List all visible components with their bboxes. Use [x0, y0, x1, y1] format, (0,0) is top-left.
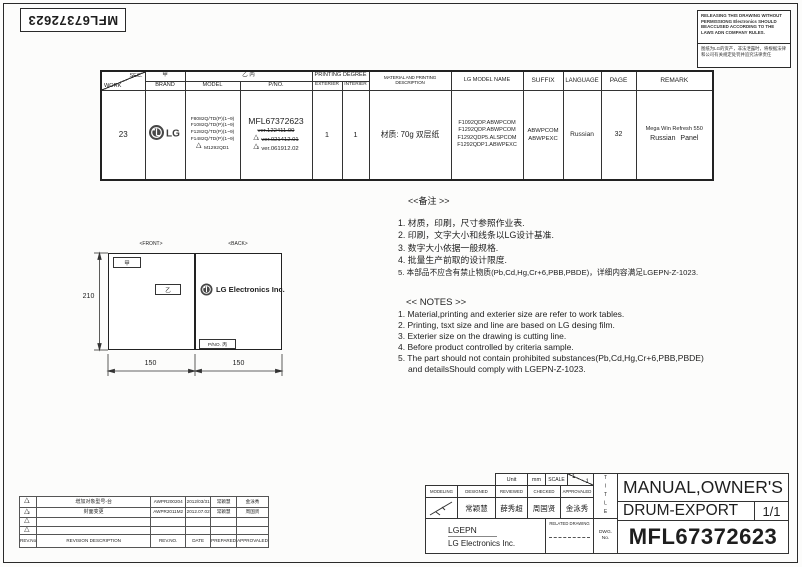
company-name: LG Electronics Inc. [448, 539, 515, 548]
pno-version: △1ver.021412.01 [241, 135, 312, 144]
header-pno: P/NO. [240, 81, 312, 90]
dim-width-left-label: 150 [138, 360, 163, 367]
note-cn-item: 2. 印刷，文字大小和线条以LG设计基准. [398, 229, 698, 241]
revision-delta-icon: △1 [196, 143, 204, 150]
cell-page: 32 [601, 90, 636, 180]
related-drawing-cell: RELATED DRAWING [545, 518, 594, 554]
revision-delta-icon: △ [24, 518, 32, 525]
header-jia: 甲 [145, 71, 185, 81]
header-exterier: EXTERIER [312, 81, 342, 90]
warning-box: RELEASING THIS DRAWING WITHOUT PERMISSIO… [697, 10, 791, 68]
revision-approved: 金泳秀 [237, 497, 269, 508]
cell-remark: Mega Win Refresh 550 Russian Panel [636, 90, 713, 180]
signature-mark [428, 499, 456, 517]
note-en-item: 5. The part should not contain prohibite… [398, 353, 704, 364]
header-work: WORK [104, 83, 121, 89]
revision-delta-icon: △ [24, 527, 32, 534]
cell-language: Russian [563, 90, 601, 180]
cell-interier: 1 [342, 90, 369, 180]
cell-lg-models: F1092QDP.ABWPCOM F1292QDP.ABWPCOM F1292Q… [451, 90, 523, 180]
related-drawing-divider [549, 537, 590, 538]
note-en-item: 4. Before product controlled by criteria… [398, 342, 704, 353]
model-line: F1282Q/TD(P)(1~9) [186, 130, 240, 137]
revision-prepared: 常颖慧 [211, 497, 237, 508]
dim-height-label: 210 [80, 293, 97, 300]
lg-model-line: F1092QDP.ABWPCOM [452, 120, 523, 128]
model-line: F1482Q/TD(P)(1~9) [186, 137, 240, 144]
revision-desc: 封面变更 [37, 508, 151, 518]
revision-label-approved: APPROVALED [237, 535, 269, 548]
remark-line: Mega Win Refresh 550 [637, 125, 713, 134]
revision-prepared: 常颖慧 [211, 508, 237, 518]
header-interier: INTERIER [342, 81, 369, 90]
revision-label-date: DATE [186, 535, 211, 548]
revision-label-revno-col: REV.No [20, 535, 37, 548]
header-sec-work: SEC. WORK [101, 71, 145, 90]
related-drawing-label: RELATED DRAWING [549, 521, 589, 526]
cell-models: F8082Q/TD(P)(1~9) F1082Q/TD(P)(1~9) F128… [185, 90, 240, 180]
dim-width-right-label: 150 [226, 360, 251, 367]
svg-text:LG: LG [166, 128, 180, 139]
revision-delta-icon: △1 [24, 498, 32, 505]
suffix-line: ABWPCOM [524, 127, 563, 135]
notes-cn-title: <<备注 >> [408, 194, 450, 207]
note-cn-item: 1. 材质，印刷，尺寸参照作业表. [398, 217, 698, 229]
header-brand: BRAND [145, 81, 185, 90]
revision-header-row: REV.No REVISION DESCRIPTION REV.NO. DATE… [20, 535, 269, 548]
revision-label-prepared: PREPARED [211, 535, 237, 548]
revision-delta-icon: △2 [253, 144, 261, 151]
cell-brand: LG [145, 90, 185, 180]
dwg-no-cell: DWG.No. [593, 518, 618, 554]
header-suffix: SUFFIX [523, 71, 563, 90]
cell-suffix: ABWPCOM ABWPEXC [523, 90, 563, 180]
lg-logo-icon: LG [148, 124, 183, 141]
drawing-number: MFL67372623 [617, 520, 789, 554]
note-en-item: 2. Printing, tsxt size and line are base… [398, 320, 704, 331]
modeling-signature [425, 497, 458, 519]
revision-desc: 增加对象型号-台 [37, 497, 151, 508]
suffix-line: ABWPEXC [524, 135, 563, 143]
reviewed-name: 薛秀超 [495, 497, 528, 519]
dimension-lines [80, 240, 300, 382]
doc-title-line1: MANUAL,OWNER'S [617, 473, 789, 502]
note-en-item: and detailsShould comply with LGEPN-Z-10… [398, 364, 704, 375]
pno-version: ver.122411.00 [241, 127, 312, 135]
work-table: SEC. WORK 甲 乙 丙 PRINTING DEGREE MATERIAL… [100, 70, 714, 181]
notes-en-list: 1. Material,printing and exterier size a… [398, 309, 704, 374]
cell-work-sec: 23 [101, 90, 145, 180]
designed-name: 常颖慧 [457, 497, 496, 519]
note-en-item: 3. Exterier size on the drawing is cutti… [398, 331, 704, 342]
doc-title-line2: DRUM-EXPORT [617, 501, 755, 521]
revision-no: AWPR200204 [151, 497, 186, 508]
notes-cn-list: 1. 材质，印刷，尺寸参照作业表. 2. 印刷，文字大小和线条以LG设计基准. … [398, 217, 698, 279]
header-lg-model-name: LG MODEL NAME [451, 71, 523, 90]
doc-number-rotated: MFL67372623 [28, 13, 118, 28]
cell-exterier: 1 [312, 90, 342, 180]
header-remark: REMARK [636, 71, 713, 90]
revision-delta-icon: △2 [24, 509, 32, 516]
lg-model-line: F1292QDP5.ALSPCOM [452, 135, 523, 143]
revision-row: △2 封面变更 AWPR2011M2 2012.07.02 常颖慧 周国贤 [20, 508, 269, 518]
header-printing-degree: PRINTING DEGREE [312, 71, 369, 81]
revision-delta-icon: △1 [253, 135, 261, 142]
checked-name: 周国贤 [527, 497, 561, 519]
company-short: LGEPN [448, 525, 497, 537]
cell-material: 材质: 70g 双层纸 [369, 90, 451, 180]
header-language: LANGUAGE [563, 71, 601, 90]
warning-text-en: RELEASING THIS DRAWING WITHOUT PERMISSIO… [698, 11, 790, 44]
revision-date: 2012.07.02 [186, 508, 211, 518]
header-material: MATERIAL AND PRINTING DESCRIPTION [369, 71, 451, 90]
revision-table: △1 增加对象型号-台 AWPR200204 2012/03/31 常颖慧 金泳… [19, 496, 269, 548]
note-cn-item: 3. 数字大小依据一般规格. [398, 242, 698, 254]
note-en-item: 1. Material,printing and exterier size a… [398, 309, 704, 320]
remark-line: Russian Panel [637, 134, 713, 144]
revision-label-description: REVISION DESCRIPTION [37, 535, 151, 548]
header-page: PAGE [601, 71, 636, 90]
revision-label-revno: REV.NO. [151, 535, 186, 548]
revision-date: 2012/03/31 [186, 497, 211, 508]
note-cn-item: 4. 批量生产前取的设计限度. [398, 254, 698, 266]
notes-en-title: << NOTES >> [406, 297, 466, 308]
model-line: F1082Q/TD(P)(1~9) [186, 123, 240, 130]
revision-row: △ [20, 526, 269, 535]
warning-text-cn: 图纸为LG的资产，非法泄露时，将根据法律和公司有关规定处罚并追究法律责任 [698, 44, 790, 68]
approved-name: 金泳秀 [560, 497, 594, 519]
revision-no: AWPR2011M2 [151, 508, 186, 518]
sheet-number: 1/1 [754, 501, 789, 521]
revision-row: △1 增加对象型号-台 AWPR200204 2012/03/31 常颖慧 金泳… [20, 497, 269, 508]
pno-version: △2ver.061912.02 [241, 144, 312, 153]
revision-row: △ [20, 518, 269, 527]
lg-model-line: F1292QDP1.ABWPEXC [452, 142, 523, 150]
header-yi-bing: 乙 丙 [185, 71, 312, 81]
title-vertical-cell: TITLE [593, 473, 618, 519]
doc-number-box: MFL67372623 [20, 8, 126, 32]
pno-main: MFL67372623 [241, 116, 312, 127]
revision-approved: 周国贤 [237, 508, 269, 518]
cell-pno: MFL67372623 ver.122411.00 △1ver.021412.0… [240, 90, 312, 180]
drawing-sheet: MFL67372623 RELEASING THIS DRAWING WITHO… [0, 0, 802, 567]
header-sec: SEC. [129, 73, 142, 79]
model-line: △1M1292QD1 [186, 143, 240, 153]
note-cn-item: 5. 本部品不应含有禁止物质(Pb,Cd,Hg,Cr+6,PBB,PBDE)，详… [398, 267, 698, 279]
company-cell: LGEPN LG Electronics Inc. [425, 518, 546, 554]
lg-model-line: F1292QDP.ABWPCOM [452, 127, 523, 135]
header-model: MODEL [185, 81, 240, 90]
